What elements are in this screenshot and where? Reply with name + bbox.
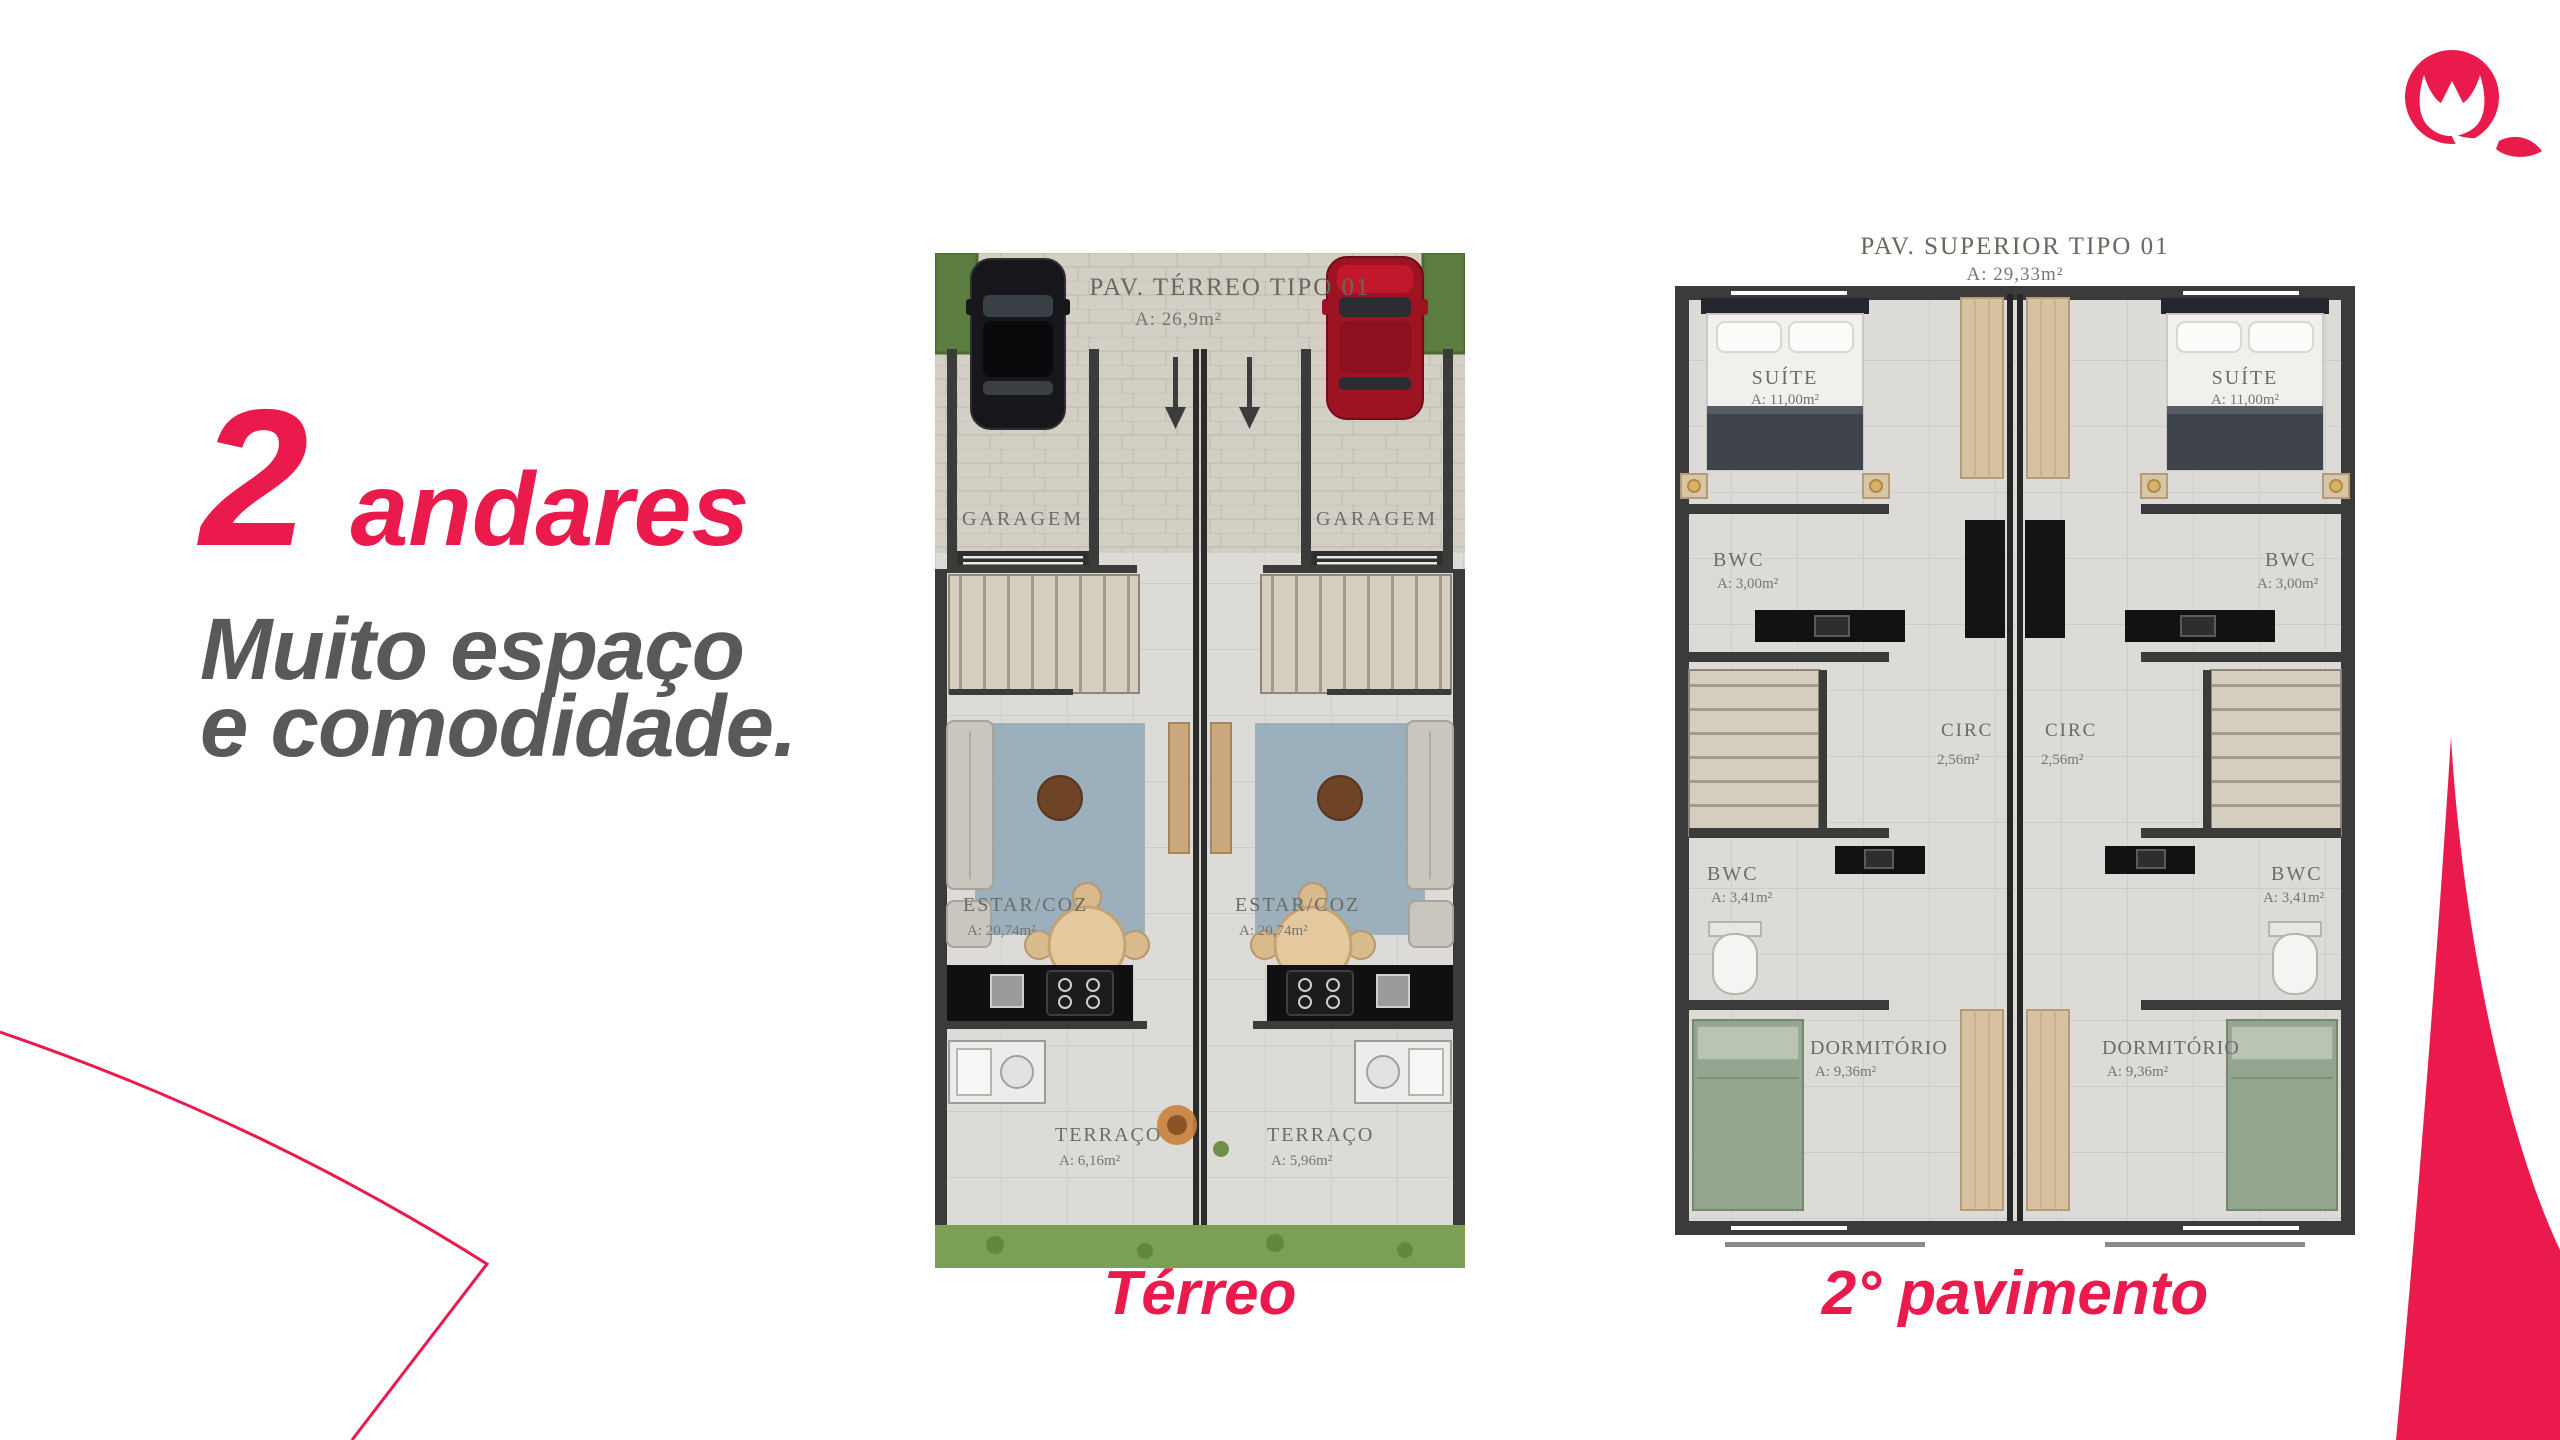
black-car <box>966 259 1070 429</box>
superior-stairs-left <box>1689 670 1827 836</box>
superior-stairs-right <box>2203 670 2341 836</box>
estar-area-right: A: 20,74m² <box>1239 923 1308 939</box>
terraco-label-left: TERRAÇO <box>1055 1124 1162 1146</box>
terrace-wall-right <box>1253 1021 1453 1029</box>
estar-label-left: ESTAR/COZ <box>963 894 1088 916</box>
logo-leaf-red <box>2496 137 2542 157</box>
terraco-area-right: A: 5,96m² <box>1271 1153 1333 1169</box>
dorm-area-right: A: 9,36m² <box>2107 1064 2169 1080</box>
hedge-right <box>1423 253 1465 353</box>
red-arc-line <box>0 1032 487 1440</box>
coffee-table-right <box>1318 776 1362 820</box>
dorm-bed-right <box>2227 1020 2337 1210</box>
circ-area-right: 2,56m² <box>2041 752 2084 768</box>
caption-superior: 2° pavimento <box>1665 1258 2365 1329</box>
terrace-wall-left <box>947 1021 1147 1029</box>
estar-area-left: A: 20,74m² <box>967 923 1036 939</box>
dorm-label-right: DORMITÓRIO <box>2102 1035 2240 1059</box>
kitchen-right <box>1267 965 1453 1021</box>
bwc1-area-right: A: 3,00m² <box>2257 576 2319 592</box>
bwc2-label-right: BWC <box>2271 863 2323 885</box>
circ-label-left: CIRC <box>1941 720 1993 741</box>
headline-subtitle-line2: e comodidade. <box>200 689 860 766</box>
wall-suite-left <box>1689 504 1889 514</box>
superior-plan-area: A: 29,33m² <box>1967 264 2064 285</box>
coffee-table-left <box>1038 776 1082 820</box>
front-wall-left <box>947 565 1137 573</box>
dorm-label-left: DORMITÓRIO <box>1810 1035 1948 1059</box>
sideboard-left <box>1169 723 1189 853</box>
bwc1-label-right: BWC <box>2265 549 2317 571</box>
terraco-area-left: A: 6,16m² <box>1059 1153 1121 1169</box>
wall-bwc1-left <box>1689 652 1889 662</box>
bwc2-area-left: A: 3,41m² <box>1711 890 1773 906</box>
sofa-right <box>1407 721 1453 947</box>
outer-wall-left <box>935 569 947 1229</box>
headline-number: 2 <box>200 402 308 554</box>
suite-area-left: A: 11,00m² <box>1751 392 1820 408</box>
circ-label-right: CIRC <box>2045 720 2097 741</box>
headline-block: 2andares Muito espaço e comodidade. <box>200 402 860 765</box>
estar-label-right: ESTAR/COZ <box>1235 894 1360 916</box>
dorm-bed-left <box>1693 1020 1803 1210</box>
laundry-right <box>1355 1041 1451 1103</box>
sideboard-right <box>1211 723 1231 853</box>
dorm-area-left: A: 9,36m² <box>1815 1064 1877 1080</box>
terreo-plan-area: A: 26,9m² <box>1135 309 1221 330</box>
stairs-left <box>949 575 1139 695</box>
garagem-label-right: GARAGEM <box>1316 508 1438 530</box>
terraco-label-right: TERRAÇO <box>1267 1124 1374 1146</box>
wall-circ-right <box>2141 828 2341 838</box>
headline-subtitle: Muito espaço e comodidade. <box>200 612 860 765</box>
stairs-right <box>1261 575 1451 695</box>
suite-area-right: A: 11,00m² <box>2211 392 2280 408</box>
bwc1-label-left: BWC <box>1713 549 1765 571</box>
balcony-rails <box>1725 1242 2305 1247</box>
superior-plan-title: PAV. SUPERIOR TIPO 01 <box>1860 233 2169 260</box>
slide: 2andares Muito espaço e comodidade. <box>0 0 2560 1440</box>
brand-flower-logo <box>2395 35 2545 165</box>
kitchen-left <box>947 965 1133 1021</box>
suite-label-right: SUÍTE <box>2212 366 2279 389</box>
wall-dorm-right <box>2141 1000 2341 1010</box>
wall-bwc1-right <box>2141 652 2341 662</box>
red-sail-shape <box>2396 737 2560 1440</box>
floorplan-terreo: PAV. TÉRREO TIPO 01 A: 26,9m² GA <box>935 253 1465 1268</box>
outer-wall-right <box>1453 569 1465 1229</box>
bwc1-area-left: A: 3,00m² <box>1717 576 1779 592</box>
suite-label-left: SUÍTE <box>1752 366 1819 389</box>
wall-dorm-left <box>1689 1000 1889 1010</box>
bwc2-label-left: BWC <box>1707 863 1759 885</box>
wall-suite-right <box>2141 504 2341 514</box>
headline-word: andares <box>350 458 749 562</box>
wall-circ-left <box>1689 828 1889 838</box>
circ-area-left: 2,56m² <box>1937 752 1980 768</box>
front-wall-right <box>1263 565 1453 573</box>
floorplan-superior: PAV. SUPERIOR TIPO 01 A: 29,33m² <box>1665 228 2365 1273</box>
laundry-left <box>949 1041 1045 1103</box>
caption-terreo: Térreo <box>935 1258 1465 1329</box>
bwc2-area-right: A: 3,41m² <box>2263 890 2325 906</box>
terreo-plan-title: PAV. TÉRREO TIPO 01 <box>1089 273 1370 301</box>
garagem-label-left: GARAGEM <box>962 508 1084 530</box>
headline-line1: 2andares <box>200 402 860 562</box>
